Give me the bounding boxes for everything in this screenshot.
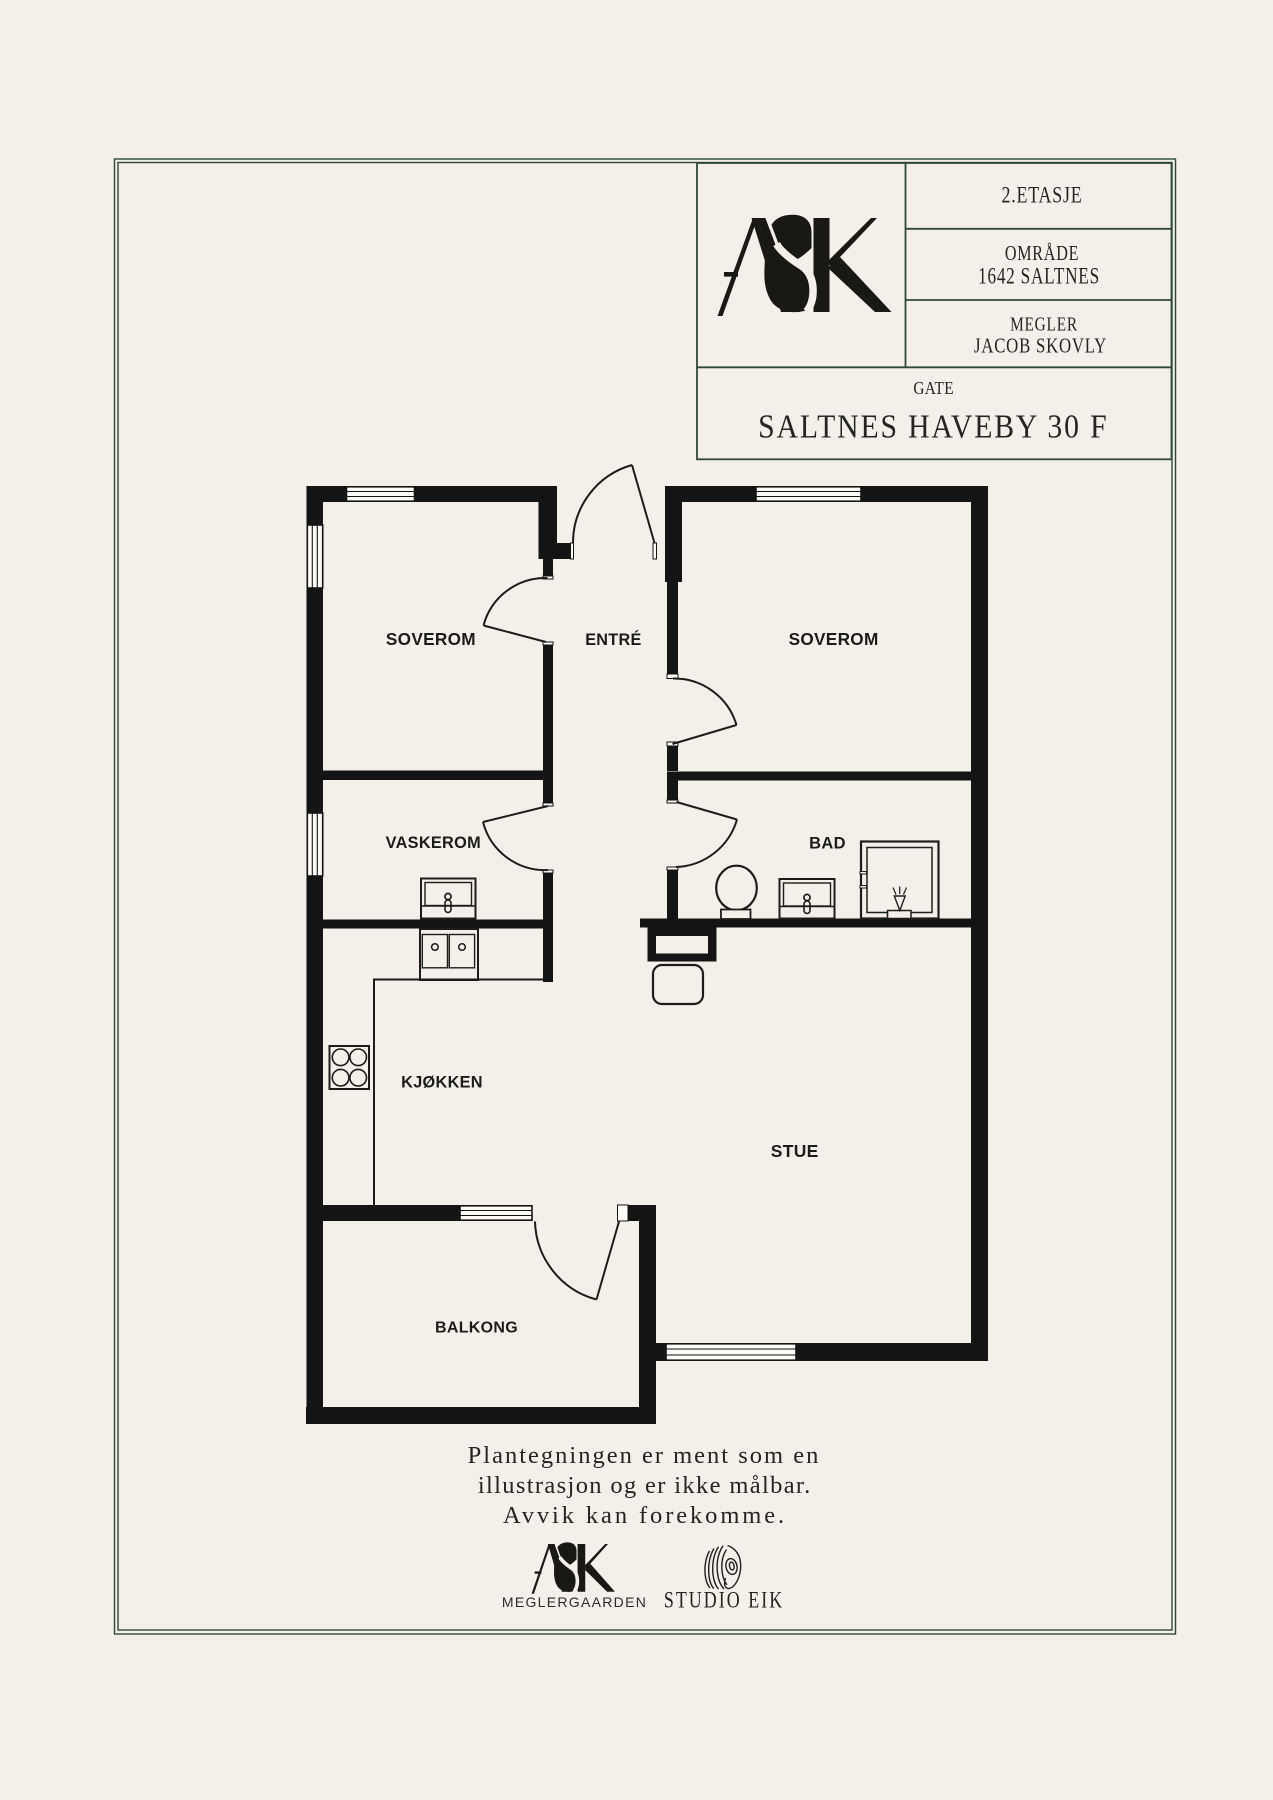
svg-text:MEGLERGAARDEN: MEGLERGAARDEN [502,1594,647,1610]
svg-text:STUDIO EIK: STUDIO EIK [664,1589,784,1614]
svg-text:MEGLER: MEGLER [1010,313,1078,335]
svg-text:illustrasjon og er ikke målbar: illustrasjon og er ikke målbar. [478,1472,812,1499]
svg-text:ENTRÉ: ENTRÉ [585,630,641,649]
svg-text:STUE: STUE [771,1141,819,1161]
svg-text:2.ETASJE: 2.ETASJE [1002,184,1083,209]
svg-text:OMRÅDE: OMRÅDE [1005,242,1079,266]
svg-text:JACOB SKOVLY: JACOB SKOVLY [974,335,1107,358]
svg-text:KJØKKEN: KJØKKEN [401,1074,483,1092]
svg-text:Plantegningen er ment som en: Plantegningen er ment som en [468,1442,821,1469]
svg-text:Avvik kan forekomme.: Avvik kan forekomme. [503,1502,787,1529]
svg-text:BAD: BAD [809,835,846,853]
svg-text:SALTNES HAVEBY 30 F: SALTNES HAVEBY 30 F [758,408,1108,445]
svg-text:SOVEROM: SOVEROM [386,629,476,649]
svg-text:VASKEROM: VASKEROM [386,834,481,852]
svg-text:SOVEROM: SOVEROM [789,629,879,649]
svg-text:1642 SALTNES: 1642 SALTNES [978,264,1100,289]
svg-text:GATE: GATE [913,378,954,398]
svg-text:BALKONG: BALKONG [435,1320,518,1337]
